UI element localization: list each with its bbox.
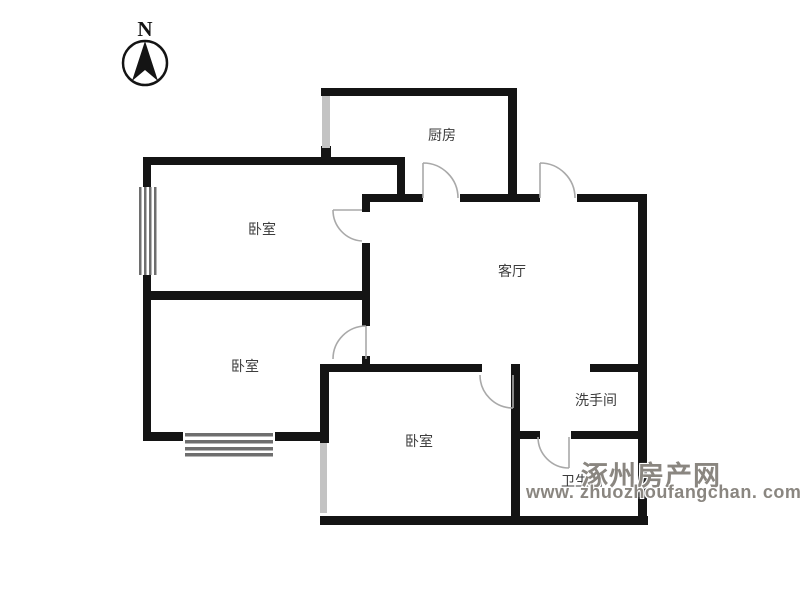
bedroom-top-left-door-arc — [333, 210, 362, 241]
window-bar — [149, 187, 152, 275]
bedroom-bottom-door-arc — [480, 375, 513, 408]
bathroom-door-arc — [538, 437, 569, 468]
wall-segment — [143, 157, 405, 165]
room-label-bedroom-top-left: 卧室 — [248, 221, 276, 237]
entry-door-arc — [540, 163, 575, 198]
window-bar — [185, 447, 273, 451]
wall-segment — [517, 431, 540, 439]
wall-segment — [460, 194, 540, 202]
north-arrow-label: N — [137, 17, 152, 41]
window-bar — [185, 453, 273, 457]
north-arrow: N — [123, 17, 167, 85]
wall-segment — [320, 364, 482, 372]
wall-segment — [577, 194, 647, 202]
window-bar — [154, 187, 157, 275]
room-label-washroom: 洗手间 — [575, 392, 617, 408]
wall-segment — [362, 194, 370, 212]
room-label-kitchen: 厨房 — [428, 127, 456, 143]
wall-segment — [321, 88, 517, 96]
floor-plan: N — [0, 0, 800, 600]
window-bar — [139, 187, 142, 275]
bedroom-bottom-window — [320, 443, 327, 513]
north-arrow-needle — [132, 41, 158, 81]
room-label-living-room: 客厅 — [498, 263, 526, 279]
wall-segment — [571, 431, 647, 439]
window-bar — [144, 187, 147, 275]
kitchen-door-arc — [423, 163, 458, 198]
room-label-bedroom-bottom: 卧室 — [405, 433, 433, 449]
wall-segment — [362, 243, 370, 326]
bedroom-middle-left-window — [183, 432, 275, 458]
wall-segment — [143, 291, 370, 300]
floor-plan-image: N — [0, 0, 800, 600]
wall-segment — [320, 516, 648, 525]
watermark-site-url: www. zhuozhoufangchan. com — [526, 482, 800, 503]
wall-segment — [397, 157, 405, 202]
room-label-bedroom-middle-left: 卧室 — [231, 358, 259, 374]
wall-segment — [508, 88, 517, 202]
wall-segment — [320, 364, 329, 443]
walls — [143, 88, 648, 525]
window-bar — [185, 440, 273, 444]
bedroom-top-left-window — [135, 187, 158, 275]
window-bar — [185, 433, 273, 437]
wall-segment — [362, 194, 423, 202]
wall-segment — [321, 146, 331, 165]
bedroom-middle-left-door-arc — [333, 326, 366, 359]
kitchen-window — [322, 96, 330, 148]
